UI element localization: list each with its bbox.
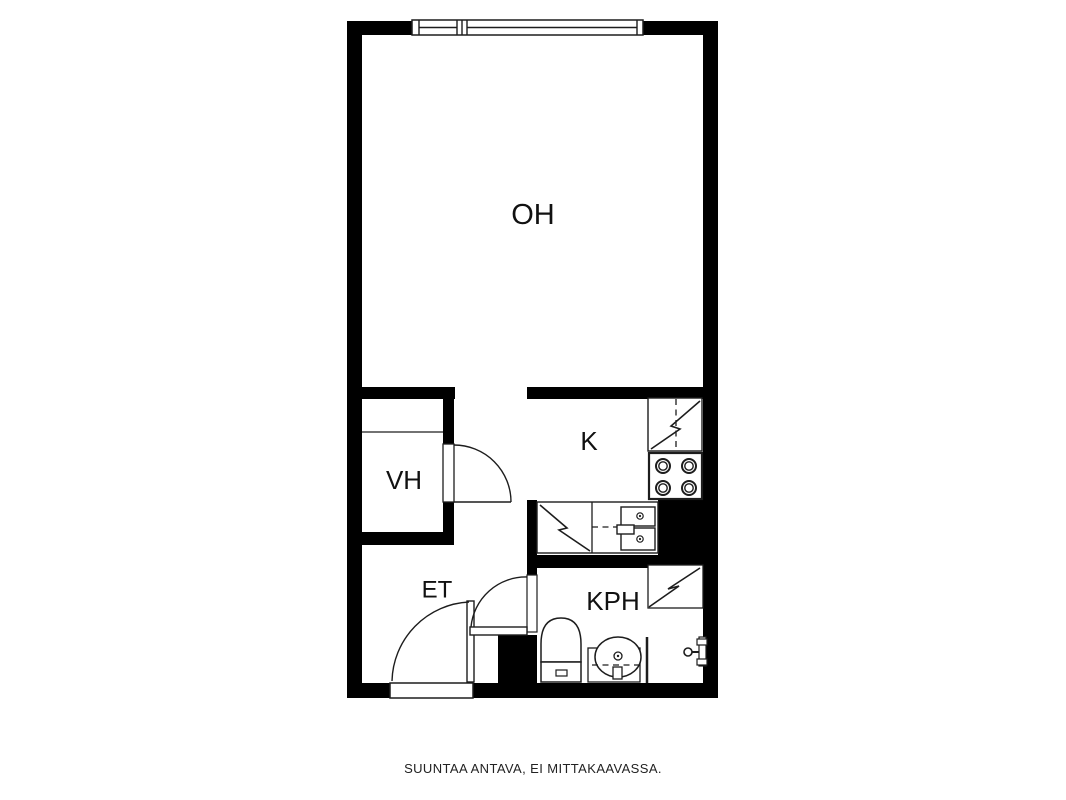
wall-right xyxy=(703,21,718,698)
wall-fixture-knob xyxy=(684,648,692,656)
entrance-door-leaf xyxy=(467,601,474,682)
sink-basin-top xyxy=(621,507,655,526)
wall-top-left xyxy=(347,21,412,35)
bathroom-door-leaf xyxy=(470,627,527,635)
room-label-kitchen: K xyxy=(580,426,598,456)
wall-fixture-cap-top xyxy=(697,639,707,645)
entrance-door-arc xyxy=(392,602,469,681)
room-label-closet: VH xyxy=(386,465,422,495)
wall-bottom-right xyxy=(473,683,718,698)
wall-kitchen-shaft xyxy=(658,500,703,555)
entrance-door-opening xyxy=(390,683,473,698)
room-label-living-room: OH xyxy=(511,199,555,231)
floor-plan: OHVHKETKPH xyxy=(0,0,1066,800)
bathroom-door-arc xyxy=(471,577,527,627)
toilet-bowl xyxy=(541,618,581,662)
wall-fixture-cap-bottom xyxy=(697,659,707,665)
toilet-flush-button xyxy=(556,670,567,676)
wall-closet-bottom xyxy=(362,532,454,545)
wall-kitchen-top xyxy=(527,387,703,399)
closet-door-arc xyxy=(454,445,511,502)
closet-door-opening xyxy=(443,444,454,502)
scale-disclaimer: SUUNTAA ANTAVA, EI MITTAKAAVASSA. xyxy=(0,761,1066,776)
washbasin-drain-dot xyxy=(617,655,619,657)
sink-drain-dot xyxy=(639,538,641,540)
floorplan-page: OHVHKETKPH SUUNTAA ANTAVA, EI MITTAKAAVA… xyxy=(0,0,1066,800)
washbasin-tap xyxy=(613,667,622,679)
wall-closet-top xyxy=(362,387,455,399)
wall-divider-block xyxy=(498,635,537,683)
wall-closet-right-upper xyxy=(443,387,454,444)
room-label-hallway: ET xyxy=(422,576,453,603)
sink-tap xyxy=(617,525,634,534)
bathroom-door-opening xyxy=(527,575,537,632)
wall-left xyxy=(347,21,362,698)
sink-drain-dot xyxy=(639,515,641,517)
wall-bottom-left xyxy=(347,683,391,698)
room-label-bathroom: KPH xyxy=(586,586,639,616)
